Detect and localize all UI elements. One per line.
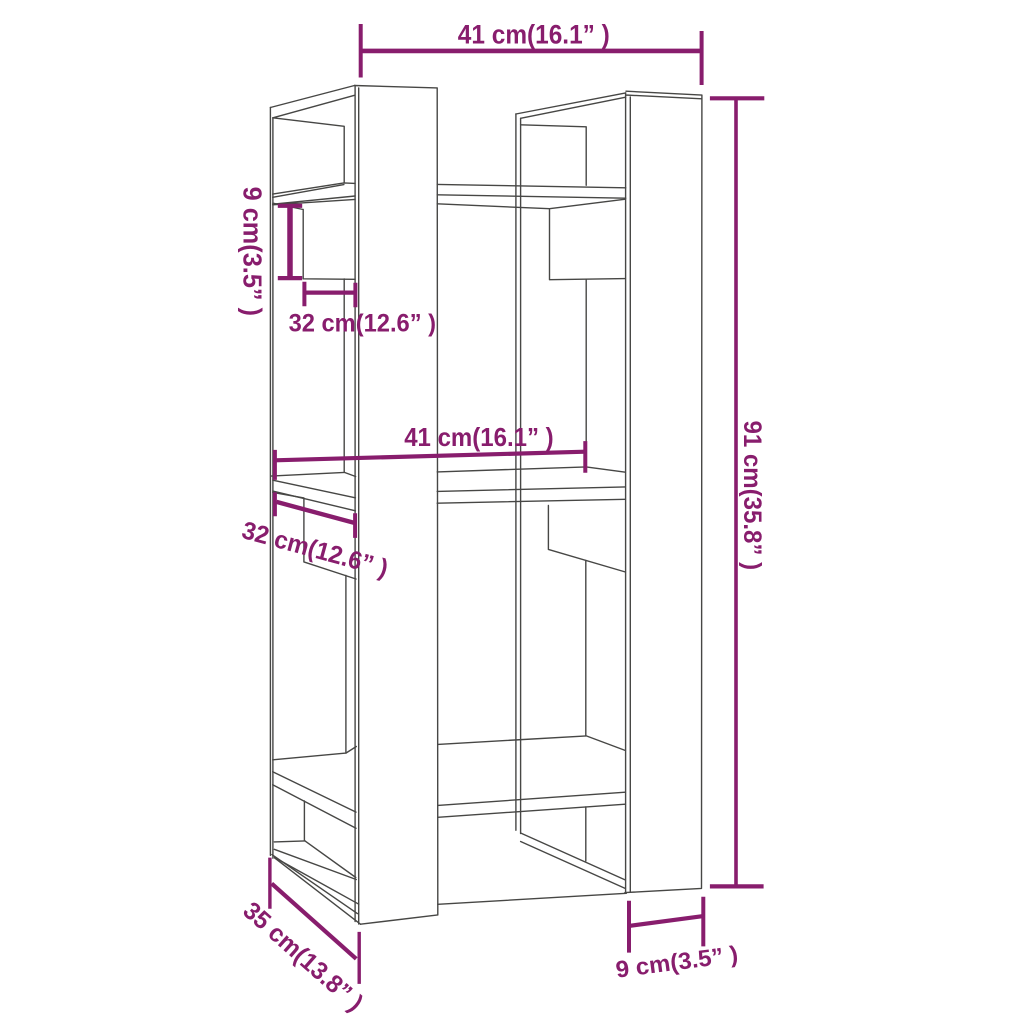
svg-text:32 cm(12.6” ): 32 cm(12.6” ) [239, 516, 391, 583]
svg-text:41 cm(16.1” ): 41 cm(16.1” ) [404, 422, 554, 452]
svg-text:9 cm(3.5” ): 9 cm(3.5” ) [237, 187, 265, 316]
svg-text:41 cm(16.1” ): 41 cm(16.1” ) [458, 20, 610, 50]
svg-text:91 cm(35.8” ): 91 cm(35.8” ) [738, 421, 766, 571]
svg-text:32 cm(12.6” ): 32 cm(12.6” ) [289, 310, 436, 338]
svg-text:9 cm(3.5” ): 9 cm(3.5” ) [614, 941, 739, 983]
